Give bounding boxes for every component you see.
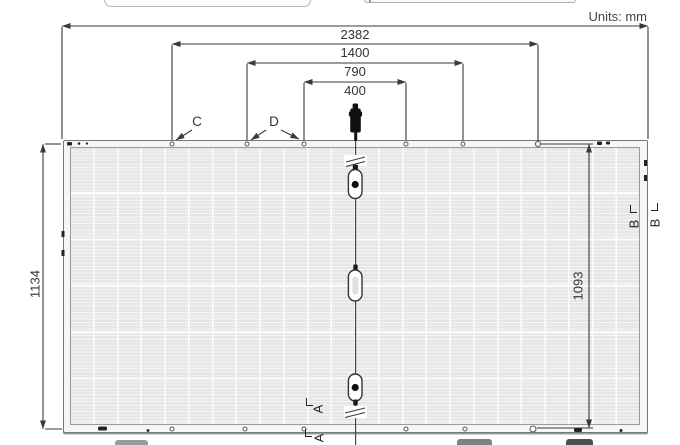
dim-label-400: 400 (344, 84, 366, 97)
leader-c (176, 130, 192, 140)
units-label: Units: mm (589, 9, 648, 24)
section-b-outer-mark (651, 203, 658, 211)
section-b-inner-label: B (627, 220, 642, 229)
section-a-inner-label: A (311, 405, 326, 414)
dim-label-1400: 1400 (341, 46, 370, 59)
section-b-outer-label: B (648, 219, 663, 228)
section-a-outer-label: A (312, 434, 327, 443)
cropped-figure-fragment-top-left (104, 0, 311, 7)
solar-cell-grid (70, 147, 640, 425)
cropped-figure-fragment-bottom-mid (457, 439, 492, 445)
dim-label-790: 790 (344, 65, 366, 78)
cropped-figure-fragment-bottom-right (566, 439, 593, 445)
section-b-inner-mark (630, 205, 637, 213)
fragment-detail (369, 0, 371, 3)
dim-label-2382: 2382 (341, 28, 370, 41)
solar-module-mechanical-drawing: Units: mm 2382 1400 790 400 1134 1093 C … (0, 0, 680, 445)
leader-d (251, 130, 299, 140)
cropped-figure-fragment-top-right (364, 0, 576, 3)
cropped-figure-fragment-bottom-left (115, 440, 148, 445)
dim-label-1134: 1134 (28, 270, 43, 298)
hole-callout-c: C (192, 114, 202, 129)
dim-1134 (43, 144, 62, 429)
dim-label-1093: 1093 (571, 272, 586, 301)
mc4-connector-icon (349, 104, 362, 142)
hole-callout-d: D (269, 114, 279, 129)
